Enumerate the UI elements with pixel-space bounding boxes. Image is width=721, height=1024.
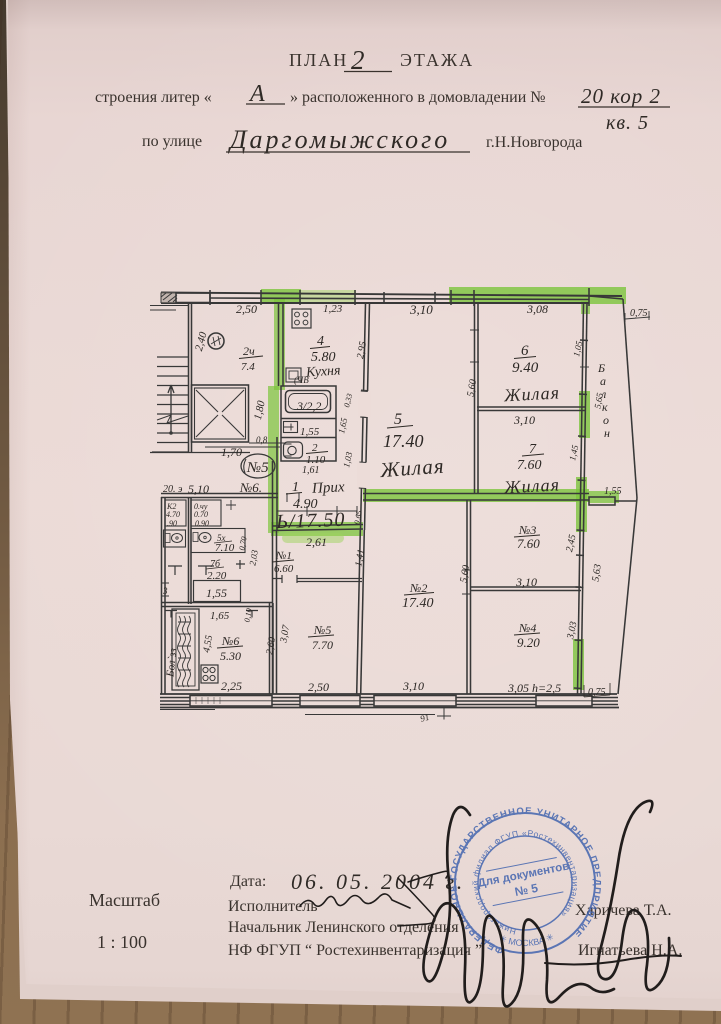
svg-text:Кухня: Кухня [305,363,341,380]
svg-text:2,61: 2,61 [306,535,327,549]
svg-text:н: н [604,426,610,440]
svg-text:0,33: 0,33 [342,393,354,409]
svg-text:7.70: 7.70 [312,638,333,652]
svg-text:3,08: 3,08 [526,302,548,316]
svg-text:1,55: 1,55 [300,426,320,438]
svg-text:4,55: 4,55 [201,634,215,653]
svg-text:строения литер «: строения литер « [95,89,212,106]
svg-text:по улице: по улице [142,133,202,150]
svg-text:5,10: 5,10 [188,482,209,496]
svg-text:0.90: 0.90 [195,519,209,528]
svg-text:3/2,2: 3/2,2 [296,399,321,413]
svg-text:9.20: 9.20 [517,635,540,650]
svg-text:7.60: 7.60 [517,458,542,473]
svg-text:№6.: №6. [239,480,262,495]
svg-text:1,65: 1,65 [210,610,230,622]
svg-text:5.30: 5.30 [220,649,241,663]
svg-text:3,07: 3,07 [278,623,292,644]
svg-text:9.40: 9.40 [512,360,539,376]
svg-text:№ 5: № 5 [514,881,540,899]
svg-text:№5: №5 [246,460,269,476]
svg-text:17.40: 17.40 [402,596,434,611]
svg-text:4.70: 4.70 [166,510,180,519]
svg-text:3,10: 3,10 [409,302,433,317]
svg-text:1,61: 1,61 [302,465,320,476]
svg-text:л: л [600,387,606,401]
svg-text:20 кор 2: 20 кор 2 [581,84,661,108]
svg-text:2,03: 2,03 [247,549,260,567]
svg-text:1,45: 1,45 [567,444,580,462]
svg-text:0,75: 0,75 [630,308,648,319]
svg-text:о: о [603,413,609,427]
svg-text:Масштаб: Масштаб [89,890,160,910]
svg-text:Прих: Прих [311,479,346,497]
svg-text:1,55: 1,55 [604,486,622,497]
svg-text:№6: №6 [221,634,239,648]
svg-text:а: а [600,374,606,388]
svg-text:ЭТАЖА: ЭТАЖА [400,50,474,70]
svg-text:(ЧВ: (ЧВ [294,375,309,385]
svg-text:1,80: 1,80 [252,399,268,421]
svg-text:2,50: 2,50 [308,680,329,694]
svg-text:17.40: 17.40 [383,431,424,451]
svg-text:0,10: 0,10 [243,608,254,623]
svg-text:5,63: 5,63 [590,563,603,582]
svg-text:Ь/17.50: Ь/17.50 [275,509,346,533]
svg-text:20. э: 20. э [163,484,183,495]
svg-text:Начальник Ленинского отделения: Начальник Ленинского отделения [228,919,459,936]
svg-text:№3: №3 [518,523,536,537]
svg-text:2,25: 2,25 [221,679,242,693]
svg-text:1,41: 1,41 [353,548,367,567]
svg-text:91: 91 [419,712,430,724]
svg-text:Дата:: Дата: [230,873,266,890]
svg-text:3: 3 [162,586,168,596]
svg-text:.90: .90 [167,519,177,528]
svg-text:Б: Б [597,361,605,375]
svg-text:2,45: 2,45 [564,534,578,553]
svg-text:3,10: 3,10 [513,413,535,427]
svg-text:2,50: 2,50 [236,302,257,316]
svg-text:3,10: 3,10 [402,679,424,693]
svg-text:№4: №4 [518,621,536,635]
svg-text:ПЛАН: ПЛАН [289,50,348,70]
svg-text:0.70: 0.70 [194,510,208,519]
svg-text:1,65: 1,65 [336,416,349,434]
svg-text:№5: №5 [313,623,331,637]
svg-text:кв. 5: кв. 5 [606,112,649,134]
svg-text:7.60: 7.60 [517,536,540,551]
svg-text:3,10: 3,10 [515,575,537,589]
svg-text:2.20: 2.20 [207,570,227,582]
svg-text:Даргомыжского: Даргомыжского [227,125,450,154]
svg-text:7.10: 7.10 [215,542,235,554]
svg-text:Жилая: Жилая [378,454,445,483]
svg-text:5,60: 5,60 [465,379,479,398]
svg-text:1,70: 1,70 [221,445,242,459]
svg-text:А: А [248,81,265,107]
svg-text:к: к [602,400,608,414]
svg-text:6.60: 6.60 [274,563,294,575]
svg-text:1,23: 1,23 [323,303,343,315]
svg-text:Жилая: Жилая [503,474,561,497]
svg-text:6: 6 [521,343,529,359]
svg-text:1 : 100: 1 : 100 [97,932,147,952]
svg-text:г.Н.Новгорода: г.Н.Новгорода [486,134,582,151]
svg-text:2: 2 [351,45,365,75]
svg-text:2ч: 2ч [243,344,255,358]
svg-text:0,8: 0,8 [256,435,268,445]
svg-text:1,03: 1,03 [341,450,354,468]
svg-text:Жилая: Жилая [503,382,561,405]
svg-text:5.80: 5.80 [311,350,336,365]
svg-text:2,40: 2,40 [193,330,210,352]
svg-text:2,95: 2,95 [355,341,369,360]
svg-text:5: 5 [394,411,402,428]
svg-text:7.4: 7.4 [241,361,255,373]
svg-text:Исполнитель: Исполнитель [228,898,318,915]
svg-text:3,05 h=2,5: 3,05 h=2,5 [507,681,561,695]
svg-text:0,70: 0,70 [237,536,248,551]
svg-text:» расположенного в домовладени: » расположенного в домовладении № [290,89,546,106]
svg-text:3,03: 3,03 [565,621,580,641]
svg-text:1,55: 1,55 [206,586,227,600]
svg-text:Бол`зз: Бол`зз [164,648,179,679]
